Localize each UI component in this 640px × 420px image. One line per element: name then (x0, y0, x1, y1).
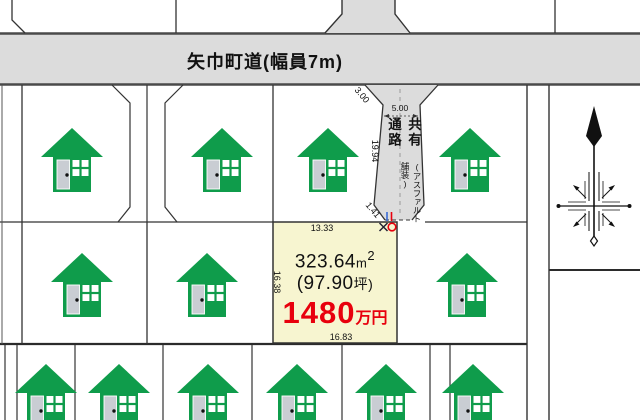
dimension-corridor-width: 5.00 (386, 103, 414, 113)
house-icon (354, 363, 418, 420)
dimension-top-edge: 13.33 (300, 223, 344, 233)
house-icon (190, 127, 254, 193)
house-icon (176, 363, 240, 420)
house-icon (296, 127, 360, 193)
plot-price: 1480万円 (273, 297, 397, 328)
site-map: 矢巾町道(幅員7m) 共有通路 (アスファルト舗装) 323.64m2 (97.… (0, 0, 640, 420)
dimension-left-edge: 16.38 (272, 266, 282, 298)
corridor-label: 共有通路 (アスファルト舗装) (383, 117, 423, 225)
dimension-corridor-length: 19.94 (370, 135, 380, 167)
corridor-name: 共有通路 (383, 117, 423, 161)
plot-area: 323.64m2 (273, 249, 397, 273)
plot-area-tsubo: (97.90坪) (273, 273, 397, 295)
house-icon (14, 363, 78, 420)
house-icon (40, 127, 104, 193)
house-icon (175, 252, 239, 318)
road-name-label: 矢巾町道(幅員7m) (115, 48, 415, 74)
house-icon (435, 252, 499, 318)
house-icon (441, 363, 505, 420)
house-icon (50, 252, 114, 318)
house-icon (87, 363, 151, 420)
north-compass-icon (557, 106, 632, 246)
house-icon (438, 127, 502, 193)
corridor-surface-note: (アスファルト舗装) (399, 162, 423, 225)
dimension-bottom-edge: 16.83 (319, 332, 363, 342)
plot-info: 323.64m2 (97.90坪) 1480万円 (273, 249, 397, 328)
house-icon (265, 363, 329, 420)
